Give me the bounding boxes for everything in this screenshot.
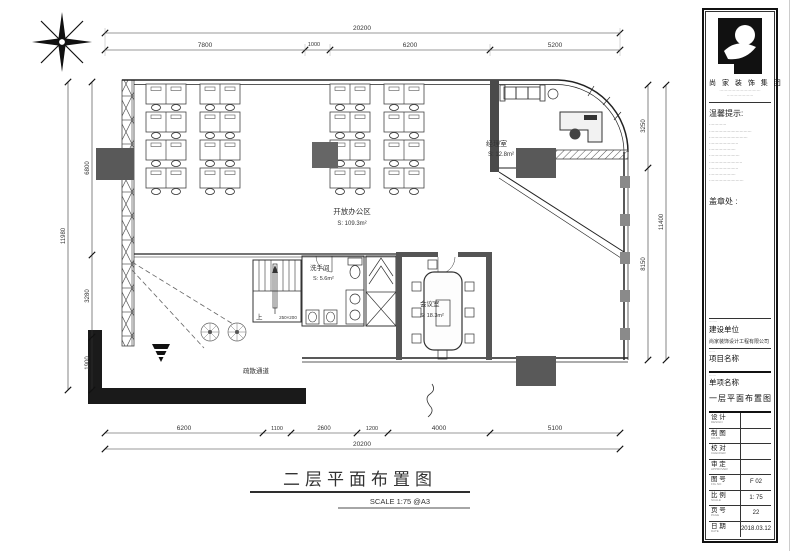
open-office-label: 开放办公区: [333, 206, 371, 216]
dim-top-3: 6200: [403, 42, 418, 49]
dim-top-4: 5200: [548, 42, 563, 49]
table-row: 制 图DRAW: [709, 429, 771, 445]
dim-bot-1: 6200: [177, 425, 192, 432]
scale-label: SCALE 1:75 @A3: [370, 497, 430, 506]
dimensions-right: [645, 82, 669, 363]
dim-top-1: 7800: [198, 42, 213, 49]
notice-lines: ········································…: [709, 122, 771, 184]
dark-cabinet: [312, 142, 338, 168]
plan-title: 二层平面布置图: [283, 470, 437, 489]
company-name: 尚 家 装 饰 集 团: [709, 78, 771, 88]
table-row: 比 例SCALE1: 75: [709, 491, 771, 507]
table-row: 校 对CHECKER: [709, 444, 771, 460]
dim-bot-total: 20200: [353, 441, 371, 448]
north-arrow-icon: [32, 12, 92, 72]
dim-bot-3: 2600: [317, 426, 331, 432]
stairs: [253, 260, 301, 322]
table-row: 设 计DESIGN: [709, 413, 771, 429]
break-line: [427, 384, 434, 417]
drawing-sheet: 开放办公区 S: 109.3m² 经理室 S: 12.8m² 上 250×200: [0, 0, 800, 551]
company-subline: ····················: [709, 93, 771, 98]
table-row: 审 定APPROVER: [709, 460, 771, 476]
dim-left-2: 3280: [85, 289, 91, 303]
dim-right-1: 3250: [641, 119, 647, 133]
wc-label: 洗手间: [310, 263, 330, 272]
table-row: 日 期DATE2018.03.12: [709, 522, 771, 538]
title-block: 尚 家 装 饰 集 团 ····························…: [702, 8, 778, 543]
dim-left-1: 6800: [85, 161, 91, 175]
table-row: 图 号FIG.NOF 02: [709, 475, 771, 491]
dim-bot-2: 1100: [271, 426, 283, 432]
desk-grid: [146, 84, 424, 195]
plant-icon: [228, 323, 246, 341]
owner-section: ······· 建设单位 尚家装饰设计工程有限公司: [709, 318, 771, 347]
sub-item-title: 一层平面布置图: [709, 393, 771, 404]
meeting-area: S: 18.3m²: [420, 313, 444, 319]
divider: [709, 102, 771, 103]
project-section: ····· 项目名称: [709, 348, 771, 371]
notice-title: 温馨提示:: [709, 108, 771, 119]
stamp-label: 盖章处 :: [709, 196, 771, 207]
floor-plan-area: 开放办公区 S: 109.3m² 经理室 S: 12.8m² 上 250×200: [0, 0, 700, 551]
dim-bot-6: 5100: [548, 425, 563, 432]
dim-right-total: 11400: [659, 213, 665, 230]
table-row: 页 号PAGE22: [709, 506, 771, 522]
sub-item-section: ······ 单项名称 一层平面布置图: [709, 371, 771, 411]
manager-office: [500, 85, 602, 142]
dim-bot-4: 1200: [366, 426, 378, 432]
dim-left-3: 1900: [85, 356, 91, 370]
dim-bot-5: 4000: [432, 425, 447, 432]
dim-left-total: 11980: [61, 227, 67, 244]
stairs-up-label: 上: [256, 312, 263, 321]
manager-label: 经理室: [486, 139, 507, 148]
stair-size-label: 250×200: [279, 315, 297, 320]
evac-label: 疏散通道: [243, 366, 270, 375]
open-office-area: S: 109.3m²: [337, 221, 366, 227]
evac-sign-icon: [152, 344, 170, 362]
sheet-edge: [789, 0, 790, 551]
meeting-label: 会议室: [420, 299, 440, 308]
elevator-shaft: [366, 256, 396, 326]
dim-top-2: 1000: [308, 42, 320, 48]
company-logo-icon: [718, 18, 762, 74]
manager-area: S: 12.8m²: [488, 152, 514, 158]
dimensions-top: [102, 28, 623, 56]
floor-plan-svg: 开放办公区 S: 109.3m² 经理室 S: 12.8m² 上 250×200: [0, 0, 700, 551]
building-walls: [122, 80, 628, 362]
dim-right-2: 8150: [641, 257, 647, 271]
meeting-room: [396, 252, 492, 360]
signature-table: 设 计DESIGN 制 图DRAW 校 对CHECKER 审 定APPROVER…: [709, 411, 771, 537]
wc-area: S: 5.6m²: [313, 276, 334, 282]
plant-icon: [201, 323, 219, 341]
dim-top-total: 20200: [353, 25, 371, 32]
